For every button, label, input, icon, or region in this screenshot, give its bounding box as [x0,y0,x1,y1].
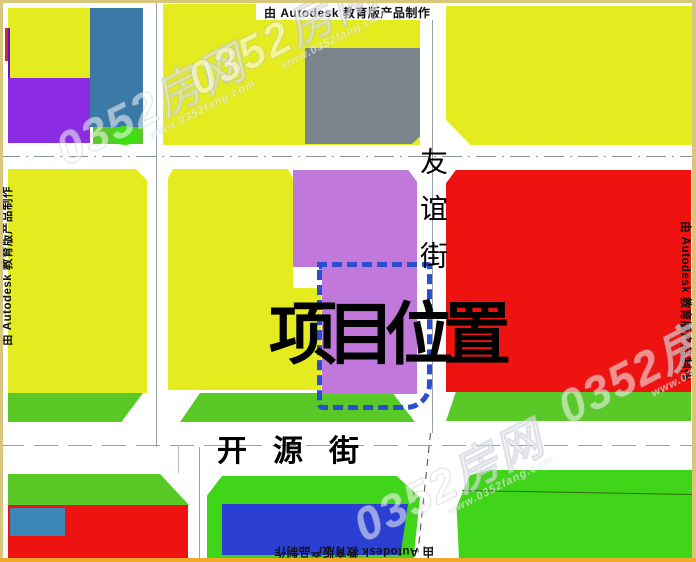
greenery-ellipse [112,126,138,145]
road-centerline-youyi-lower [417,433,431,552]
greenery-strip-midleft [8,393,143,422]
greenery-bottomleft [8,474,189,505]
project-location-label: 项目位置 [269,300,501,371]
street-label-youyi: 友谊街 [417,147,445,288]
greenery-strip-midright [446,392,691,421]
road-edge-tick [178,445,179,473]
greenery-bottomright [448,470,692,558]
parcel-project-upper [293,170,417,267]
frame-border-top [0,0,696,3]
parcel-purple-topleft [8,78,90,143]
parcel-blue-topleft [90,8,143,127]
frame-border-left [0,0,3,562]
street-label-kaiyuan: 开源街 [217,426,385,470]
frame-border-right [692,0,696,562]
road-centerline-top-horizontal [0,156,696,157]
parcel-yellow-topleft [8,8,90,78]
road-centerline-left-vertical-lower [199,447,200,558]
parcel-gray [305,48,420,144]
frame-border-bottom [0,558,696,562]
autodesk-credit-top: 由 Autodesk 教育版产品制作 [264,4,430,21]
parcel-yellow-topright [446,6,692,145]
road-centerline-left-vertical [156,0,157,447]
parcel-blue-small-bottomleft [10,508,65,536]
parcel-yellow-midleft [8,169,147,393]
planning-map: 项目位置 友谊街 开源街 由 Autodesk 教育版产品制作 由 Autode… [0,0,696,562]
